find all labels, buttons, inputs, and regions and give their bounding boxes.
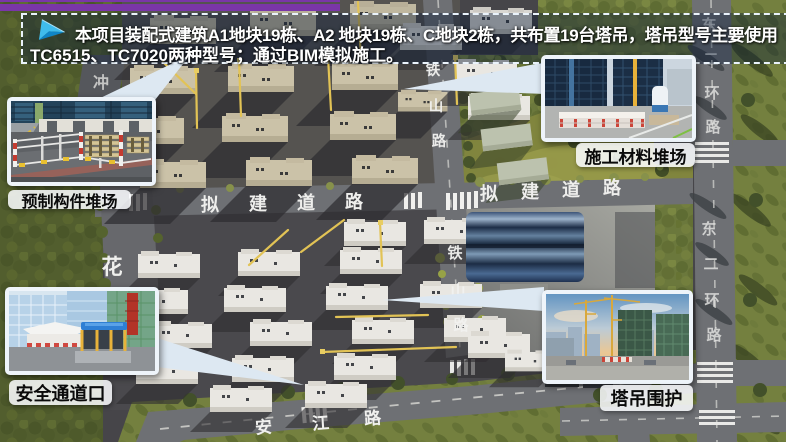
svg-text:安: 安 (254, 416, 272, 437)
svg-text:建: 建 (249, 193, 267, 214)
svg-text:花: 花 (102, 255, 123, 279)
svg-text:铁: 铁 (447, 244, 462, 262)
svg-text:道: 道 (297, 192, 315, 213)
svg-text:道: 道 (562, 179, 580, 200)
svg-text:冲: 冲 (93, 73, 109, 92)
svg-text:路: 路 (706, 326, 722, 344)
svg-text:路: 路 (705, 118, 721, 136)
svg-text:拟: 拟 (480, 183, 498, 204)
svg-text:路: 路 (363, 407, 382, 428)
svg-text:建: 建 (521, 181, 539, 202)
svg-text:路: 路 (345, 191, 364, 212)
svg-text:环: 环 (704, 85, 719, 102)
svg-text:环: 环 (704, 292, 719, 309)
svg-text:二: 二 (703, 256, 718, 273)
svg-text:东: 东 (701, 220, 716, 238)
svg-text:路: 路 (603, 177, 622, 198)
svg-text:路: 路 (453, 316, 469, 334)
svg-text:拟: 拟 (201, 194, 219, 215)
svg-text:山: 山 (429, 98, 444, 115)
svg-text:路: 路 (432, 132, 447, 150)
svg-text:江: 江 (311, 413, 329, 433)
